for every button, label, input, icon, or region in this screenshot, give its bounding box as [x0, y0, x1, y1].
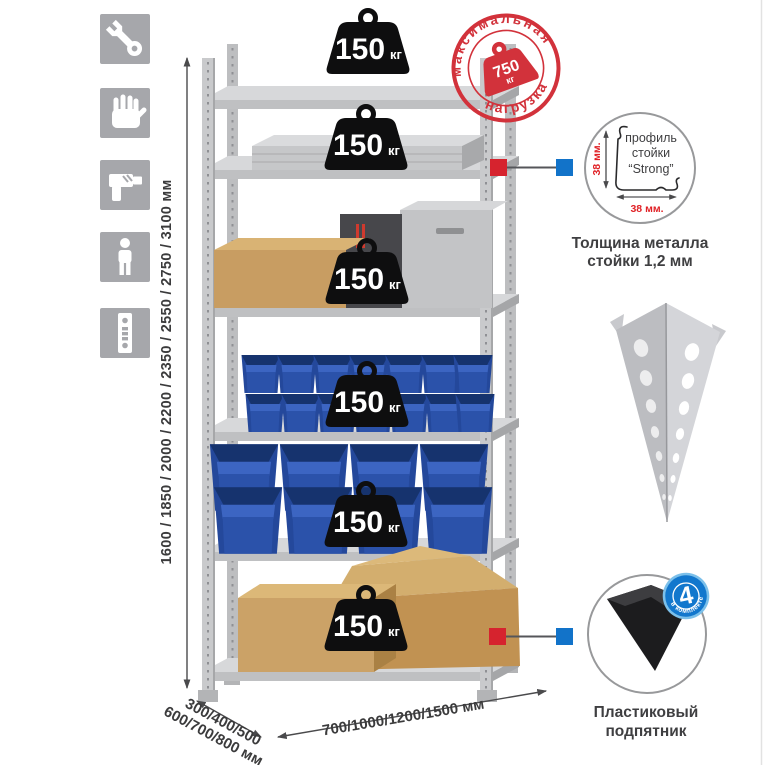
- infographic-svg: 1600 / 1850 / 2000 / 2200 / 2350 / 2550 …: [0, 0, 765, 765]
- wrench-icon: [100, 14, 150, 64]
- red-marker-square: [489, 628, 506, 645]
- profile-text-line3: “Strong”: [628, 162, 673, 176]
- foot-caption-line1: Пластиковый: [594, 704, 699, 721]
- load-unit: кг: [388, 143, 401, 158]
- width-dimension-label: 700/1000/1200/1500 мм: [321, 696, 486, 740]
- perforated-angle-post: [610, 303, 726, 522]
- product-infographic: 1600 / 1850 / 2000 / 2200 / 2350 / 2550 …: [0, 0, 765, 765]
- storage-bin: [214, 487, 282, 554]
- profile-detail: 38 мм. 38 мм. профиль стойки “Strong” То…: [572, 113, 709, 270]
- storage-bin: [246, 394, 285, 432]
- load-value: 150: [334, 386, 384, 419]
- height-dimension: 1600 / 1850 / 2000 / 2200 / 2350 / 2550 …: [159, 58, 187, 688]
- load-value: 150: [333, 129, 383, 162]
- storage-bin: [454, 355, 493, 393]
- blue-marker-square: [556, 628, 573, 645]
- load-value: 150: [333, 506, 383, 539]
- load-unit: кг: [388, 520, 401, 535]
- profile-dim-horizontal: 38 мм.: [630, 203, 663, 215]
- drill-icon: [100, 160, 150, 210]
- assembly-icons-column: [100, 14, 150, 358]
- height-dimension-label: 1600 / 1850 / 2000 / 2200 / 2350 / 2550 …: [159, 180, 175, 565]
- blue-marker-square: [556, 159, 573, 176]
- load-unit: кг: [388, 624, 401, 639]
- profile-text-line1: профиль: [625, 131, 677, 145]
- load-unit: кг: [389, 277, 402, 292]
- load-value: 150: [335, 33, 385, 66]
- profile-caption-line1: Толщина металла: [572, 235, 709, 252]
- width-dimension: 700/1000/1200/1500 мм: [278, 691, 546, 739]
- profile-dim-vertical: 38 мм.: [591, 142, 603, 175]
- profile-text-line2: стойки: [632, 146, 670, 160]
- load-unit: кг: [389, 400, 402, 415]
- storage-bin: [242, 355, 281, 393]
- foot-callout-connector: [489, 628, 573, 645]
- profile-callout-connector: [490, 159, 573, 176]
- foot-caption-line2: подпятник: [605, 723, 686, 740]
- load-badge: 150 кг: [327, 11, 410, 75]
- load-unit: кг: [390, 47, 403, 62]
- load-value: 150: [333, 610, 383, 643]
- person-icon: [100, 232, 150, 282]
- foot-detail: 4 в комплекте Пластиковый подпятник: [588, 570, 712, 740]
- profile-caption-line2: стойки 1,2 мм: [587, 253, 692, 270]
- load-value: 150: [334, 263, 384, 296]
- storage-bin: [278, 355, 317, 393]
- storage-bin: [282, 394, 321, 432]
- gloves-icon: [100, 88, 150, 138]
- red-marker-square: [490, 159, 507, 176]
- storage-bin: [456, 394, 495, 432]
- load-badge: 150 кг: [325, 107, 408, 171]
- perforated-post-icon: [100, 308, 150, 358]
- storage-bin: [424, 487, 492, 554]
